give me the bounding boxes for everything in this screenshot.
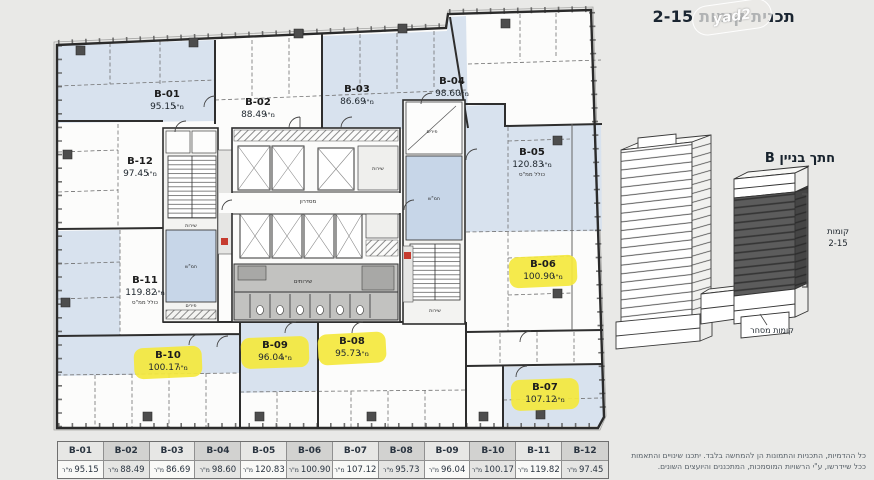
svg-text:מ"ר98.60: מ"ר98.60 [435,89,469,99]
svg-text:B-04: B-04 [439,76,465,87]
table-value-cell: מ"ר96.04 [425,461,471,478]
table-value-cell: מ"ר88.49 [104,461,150,478]
tower-b [734,166,809,338]
svg-text:כולל ממ"ס: כולל ממ"ס [132,299,158,306]
fire-cabinet-icon [404,252,411,259]
table-value-cell: מ"ר95.15 [58,461,104,478]
table-value-cell: מ"ר120.83 [241,461,287,478]
svg-text:מ"ר97.45: מ"ר97.45 [123,169,157,179]
svg-text:מ"ר95.73: מ"ר95.73 [335,349,369,359]
svg-text:מ"ר119.82: מ"ר119.82 [125,288,165,298]
svg-text:B-12: B-12 [127,156,153,167]
table-value-cell: מ"ר86.69 [150,461,196,478]
shelter-label: חמ"ש [185,264,197,270]
table-header-cell: B-04 [195,442,241,461]
floor-plan: B-01 מ"ר95.15 B-02 מ"ר88.49 B-03 מ"ר86.6… [54,7,606,430]
section-diagram: חתך בניין B קומות 2-15 קומות מסחר [616,134,849,349]
svg-text:כולל ממ"ס: כולל ממ"ס [519,171,545,178]
svg-text:B-11: B-11 [132,275,158,286]
shafts-label: פירים [426,130,437,135]
svg-text:B-07: B-07 [532,382,558,393]
floors-range-label: 2-15 [828,239,847,249]
table-header-cell: B-05 [241,442,287,461]
core-center [232,128,400,322]
floors-range-label: קומות [827,227,849,237]
table-header-cell: B-08 [379,442,425,461]
commerce-label: קומות מסחר [750,326,794,335]
svg-text:B-02: B-02 [245,97,271,108]
page-background: { "title": "תכנית קומות 2-15", "watermar… [0,0,874,480]
table-value-cell: מ"ר107.12 [333,461,379,478]
corridor-label: מסדרון [300,199,317,205]
table-header-cell: B-09 [425,442,471,461]
svg-text:B-10: B-10 [155,350,181,361]
toilets-label: שירותים [294,279,312,285]
svg-text:מ"ר95.15: מ"ר95.15 [150,102,184,112]
section-title: חתך בניין B [765,151,835,166]
shafts-label: פירים [185,304,196,309]
svg-text:מ"ר100.90: מ"ר100.90 [523,272,563,282]
table-value-cell: מ"ר119.82 [516,461,562,478]
fire-cabinet-icon [221,238,228,245]
table-value-cell: מ"ר95.73 [379,461,425,478]
table-header-cell: B-10 [470,442,516,461]
table-value-cell: מ"ר100.17 [470,461,516,478]
disclaimer-text: כל ההדמיות, התכניות והתמונות הן להמחשה ב… [596,450,866,473]
svg-text:מ"ר107.12: מ"ר107.12 [525,395,565,405]
table-header-cell: B-03 [150,442,196,461]
shafts-left [166,310,216,319]
svg-text:מ"ר88.49: מ"ר88.49 [241,110,275,120]
svg-text:B-09: B-09 [262,340,288,351]
table-header-cell: B-01 [58,442,104,461]
service-label: שירות [429,309,441,314]
svg-text:B-01: B-01 [154,89,180,100]
svg-text:B-03: B-03 [344,84,370,95]
floor-plan-and-section: B-01 מ"ר95.15 B-02 מ"ר88.49 B-03 מ"ר86.6… [0,0,874,445]
table-header-cell: B-11 [516,442,562,461]
shelter-label: חמ"ש [428,196,440,202]
svg-text:מ"ר120.83: מ"ר120.83 [512,160,552,170]
svg-text:מ"ר86.69: מ"ר86.69 [340,97,374,107]
service-label: שירות [185,224,197,229]
svg-text:מ"ר96.04: מ"ר96.04 [258,353,292,363]
table-header-cell: B-02 [104,442,150,461]
area-table: B-01 B-02 B-03 B-04 B-05 B-06 B-07 B-08 … [57,441,609,479]
svg-text:B-08: B-08 [339,336,365,347]
table-value-cell: מ"ר98.60 [195,461,241,478]
table-value-cell: מ"ר100.90 [287,461,333,478]
table-header-cell: B-06 [287,442,333,461]
svg-text:B-06: B-06 [530,259,556,270]
service-label: שירות [372,167,384,172]
tower-left [616,134,712,349]
table-header-cell: B-07 [333,442,379,461]
svg-text:B-05: B-05 [519,147,545,158]
svg-text:מ"ר100.17: מ"ר100.17 [148,363,188,373]
